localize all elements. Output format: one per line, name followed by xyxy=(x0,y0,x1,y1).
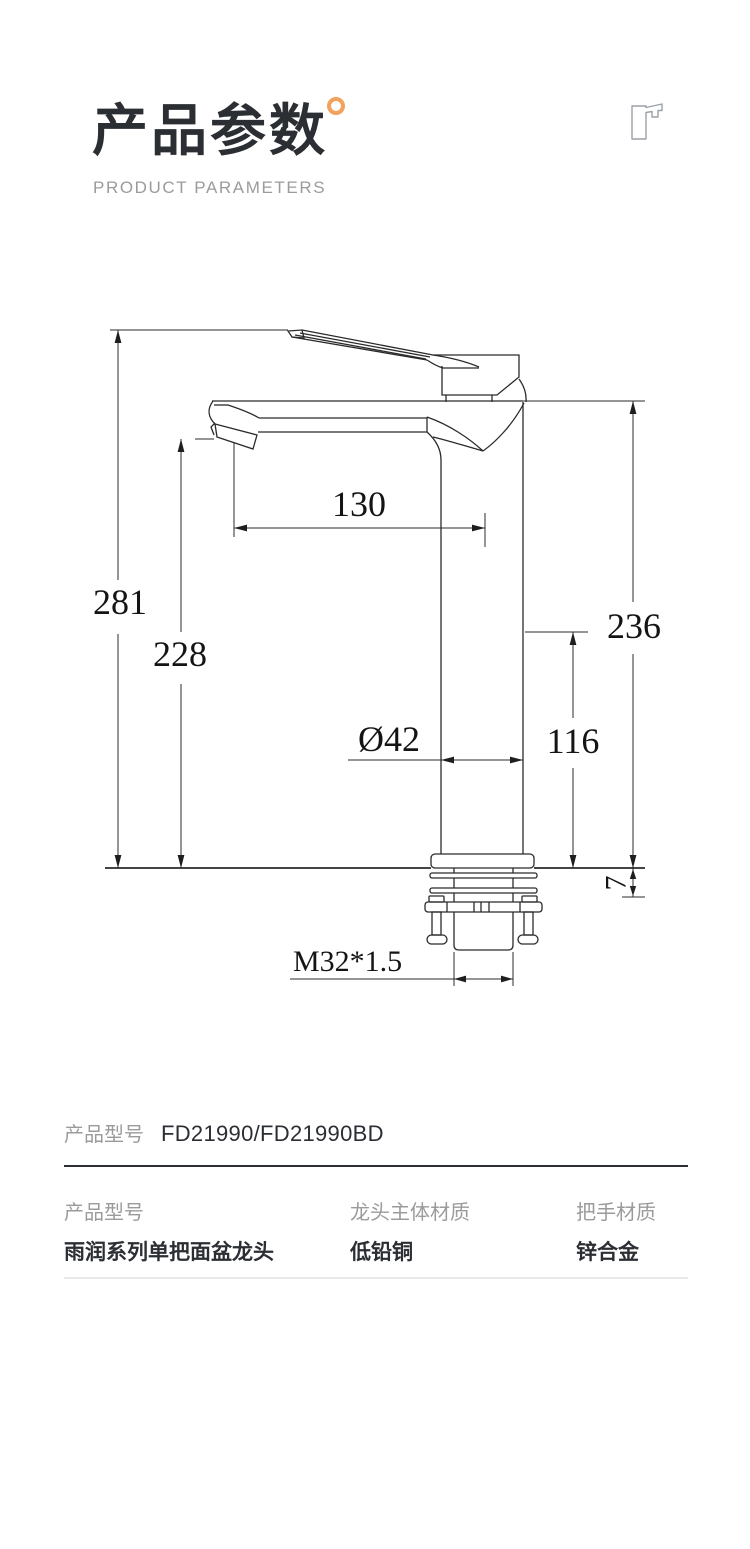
dim-right-height: 236 xyxy=(607,606,661,646)
dim-body-height: 116 xyxy=(547,721,600,761)
spec-body-material: 龙头主体材质 低铅铜 xyxy=(350,1196,470,1266)
dim-spout-height: 228 xyxy=(153,634,207,674)
divider-light xyxy=(64,1277,688,1279)
dim-thread: M32*1.5 xyxy=(293,945,402,978)
spec-value: 低铅铜 xyxy=(350,1236,470,1266)
dim-diameter: Ø42 xyxy=(358,719,420,759)
spec-handle-material: 把手材质 锌合金 xyxy=(576,1196,656,1266)
model-value: FD21990/FD21990BD xyxy=(161,1121,384,1147)
dim-spout-reach: 130 xyxy=(332,484,386,524)
spec-product-model: 产品型号 雨润系列单把面盆龙头 xyxy=(64,1196,274,1266)
model-row: 产品型号 FD21990/FD21990BD xyxy=(64,1118,688,1147)
dim-total-height: 281 xyxy=(93,582,147,622)
model-label: 产品型号 xyxy=(64,1118,144,1147)
spec-label: 产品型号 xyxy=(64,1196,274,1225)
dim-deck-thickness: 7 xyxy=(600,876,633,891)
divider-dark xyxy=(64,1165,688,1167)
spec-label: 龙头主体材质 xyxy=(350,1196,470,1225)
spec-label: 把手材质 xyxy=(576,1196,656,1225)
spec-value: 锌合金 xyxy=(576,1236,656,1266)
faucet-technical-drawing: 281 228 130 Ø42 116 236 7 M32*1.5 xyxy=(0,0,750,1060)
spec-value: 雨润系列单把面盆龙头 xyxy=(64,1236,274,1266)
